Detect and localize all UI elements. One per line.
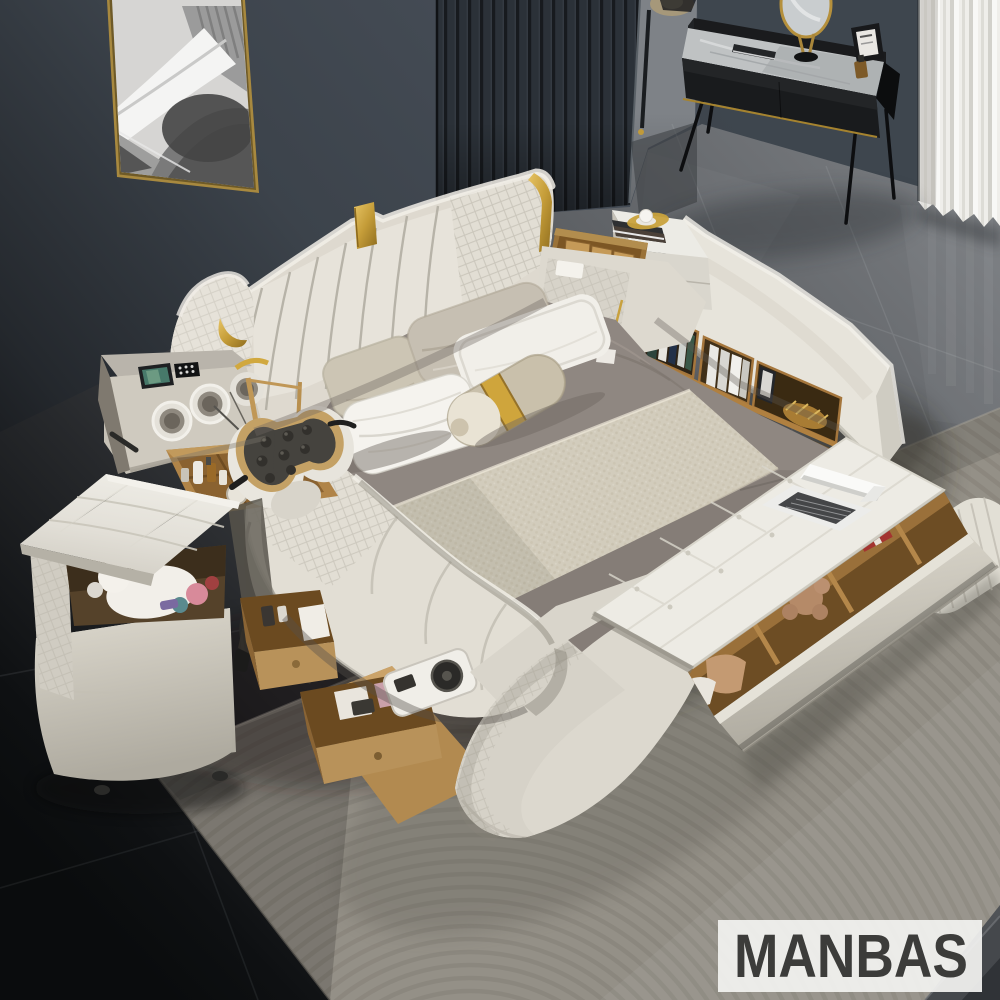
svg-text:MANBAS: MANBAS [734,922,968,990]
